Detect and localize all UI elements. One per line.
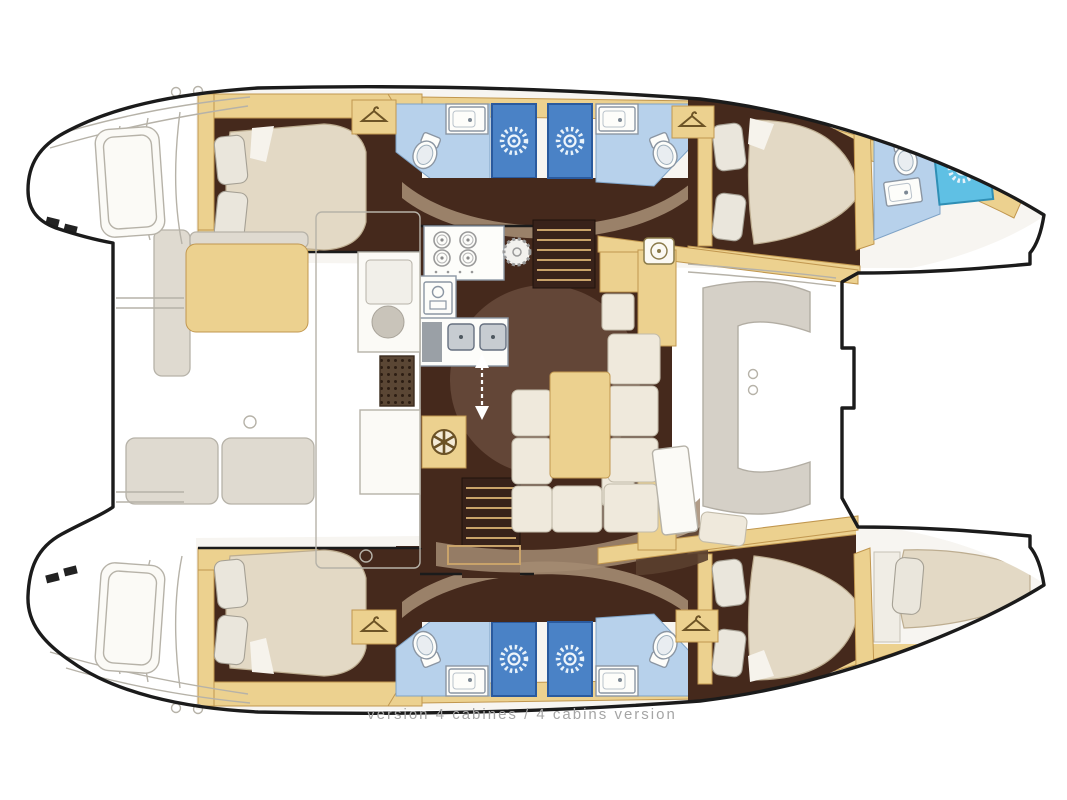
saloon-table	[550, 372, 610, 478]
cockpit-seat	[222, 438, 314, 504]
cockpit-bench	[186, 244, 308, 332]
cockpit-seat	[126, 438, 218, 504]
helm-seat	[372, 306, 404, 338]
wardrobe-starboard-forward	[676, 610, 718, 642]
shower-stall	[933, 135, 993, 204]
round-hob-icon	[504, 239, 530, 265]
oven-icon	[424, 282, 452, 314]
nav-instrument-icon	[644, 238, 674, 264]
floorplan-canvas: version 4 cabines / 4 cabins version	[0, 0, 1067, 800]
wardrobe-port-aft	[352, 100, 396, 134]
wardrobe-starboard-aft	[352, 610, 396, 644]
nav-seat	[600, 238, 676, 346]
pillow	[892, 557, 925, 615]
deck-grate-icon	[380, 356, 414, 406]
catamaran-floorplan: version 4 cabines / 4 cabins version	[0, 0, 1067, 800]
stairs-port	[533, 220, 595, 288]
caption: version 4 cabines / 4 cabins version	[367, 706, 677, 723]
wardrobe-port-forward	[672, 106, 714, 138]
